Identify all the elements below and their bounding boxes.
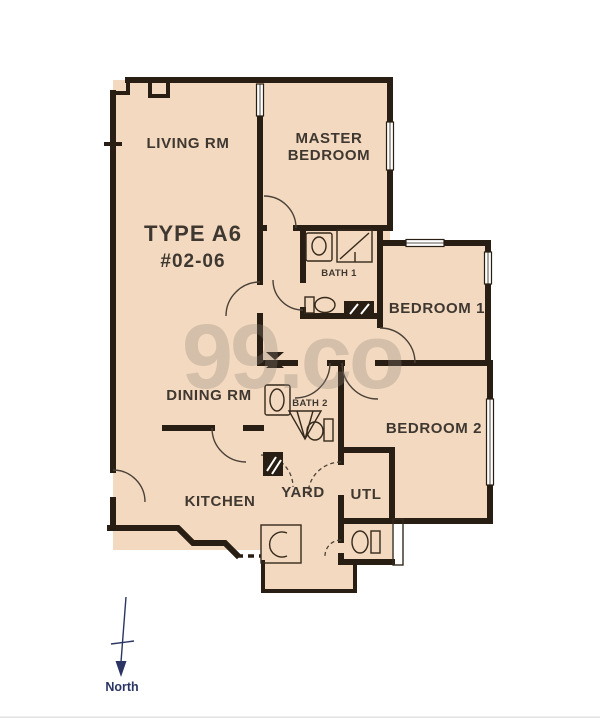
room-label-dining: DINING RM <box>166 387 251 404</box>
floor-plan-svg: 99.co LIVING RM MASTER BEDROOM TYPE A6 #… <box>0 0 600 719</box>
room-label-bedroom1: BEDROOM 1 <box>389 300 485 317</box>
room-label-kitchen: KITCHEN <box>185 493 256 510</box>
type-label: TYPE A6 <box>144 221 242 246</box>
compass-needle-line <box>121 597 126 662</box>
room-label-living: LIVING RM <box>147 135 230 152</box>
north-arrowhead-icon <box>116 661 127 677</box>
yard-extension-floor <box>263 562 355 591</box>
room-label-master-2: BEDROOM <box>288 147 371 164</box>
wall-ac-ledge <box>393 519 403 565</box>
room-wc-floor <box>341 521 392 562</box>
room-label-bath2: BATH 2 <box>292 398 327 409</box>
north-label: North <box>105 680 138 694</box>
room-label-bath1: BATH 1 <box>321 268 357 279</box>
room-label-utility: UTL <box>351 486 382 503</box>
north-compass: North <box>105 597 138 694</box>
floorplan-page: 99.co LIVING RM MASTER BEDROOM TYPE A6 #… <box>0 0 600 719</box>
bottom-divider <box>0 717 600 719</box>
room-label-master-1: MASTER <box>296 130 363 147</box>
room-label-bedroom2: BEDROOM 2 <box>386 420 482 437</box>
unit-number-label: #02-06 <box>160 251 225 272</box>
room-label-yard: YARD <box>281 484 325 501</box>
